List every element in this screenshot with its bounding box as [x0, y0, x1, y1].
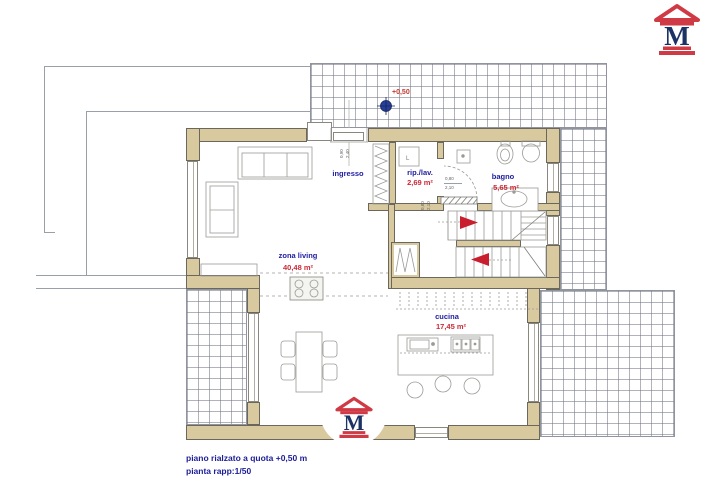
bagno-door-leaf: [441, 197, 477, 204]
dim-bagno-height: 2,10: [445, 185, 454, 190]
tv-cabinet: [201, 264, 257, 276]
hob-island: [290, 277, 323, 300]
stairs-lower-flight: [456, 247, 546, 277]
dim-entry-width: 0,90: [339, 149, 344, 158]
plan-scale: pianta rapp:1/50: [186, 466, 251, 476]
studio-logo-bottom: M: [334, 396, 374, 438]
room-label-rip-lav: rip./lav.: [396, 168, 444, 177]
dim-riplav-width: 0,80: [420, 201, 425, 210]
dim-bagno-width: 0,80: [445, 176, 454, 181]
projection-dashed-line: [260, 273, 388, 296]
dining-table: [281, 332, 337, 392]
room-area-zona-living: 40,48 m²: [268, 263, 328, 272]
dim-riplav-height: 2,10: [426, 201, 431, 210]
plan-title: piano rialzato a quota +0,50 m: [186, 453, 307, 463]
floor-plan-canvas: L +0,50 in: [0, 0, 708, 500]
room-area-cucina: 17,45 m²: [426, 322, 476, 331]
sofa: [238, 147, 312, 179]
stairs-projection-dashed: [396, 292, 538, 309]
washing-machine: L: [399, 147, 419, 166]
dim-entry-height: 2,40: [345, 149, 350, 158]
kitchen-island: [398, 335, 493, 375]
level-marker: [377, 97, 395, 115]
stairs-upper-flight: [438, 211, 546, 240]
room-label-ingresso: ingresso: [328, 169, 368, 178]
entrance-frame: [330, 128, 368, 142]
room-label-zona-living: zona living: [268, 251, 328, 260]
room-label-bagno: bagno: [478, 172, 528, 181]
level-value: +0,50: [392, 89, 410, 96]
room-area-bagno: 5,65 m²: [481, 183, 531, 192]
kitchen-stools: [407, 376, 480, 398]
room-area-rip-lav: 2,69 m²: [396, 178, 444, 187]
studio-logo-top: M: [654, 3, 700, 55]
room-label-cucina: cucina: [422, 312, 472, 321]
svg-text:L: L: [406, 156, 410, 162]
closet-rail: [396, 248, 415, 272]
dim-separator: [444, 183, 462, 184]
sofa: [206, 182, 238, 237]
wardrobe: [373, 144, 389, 204]
